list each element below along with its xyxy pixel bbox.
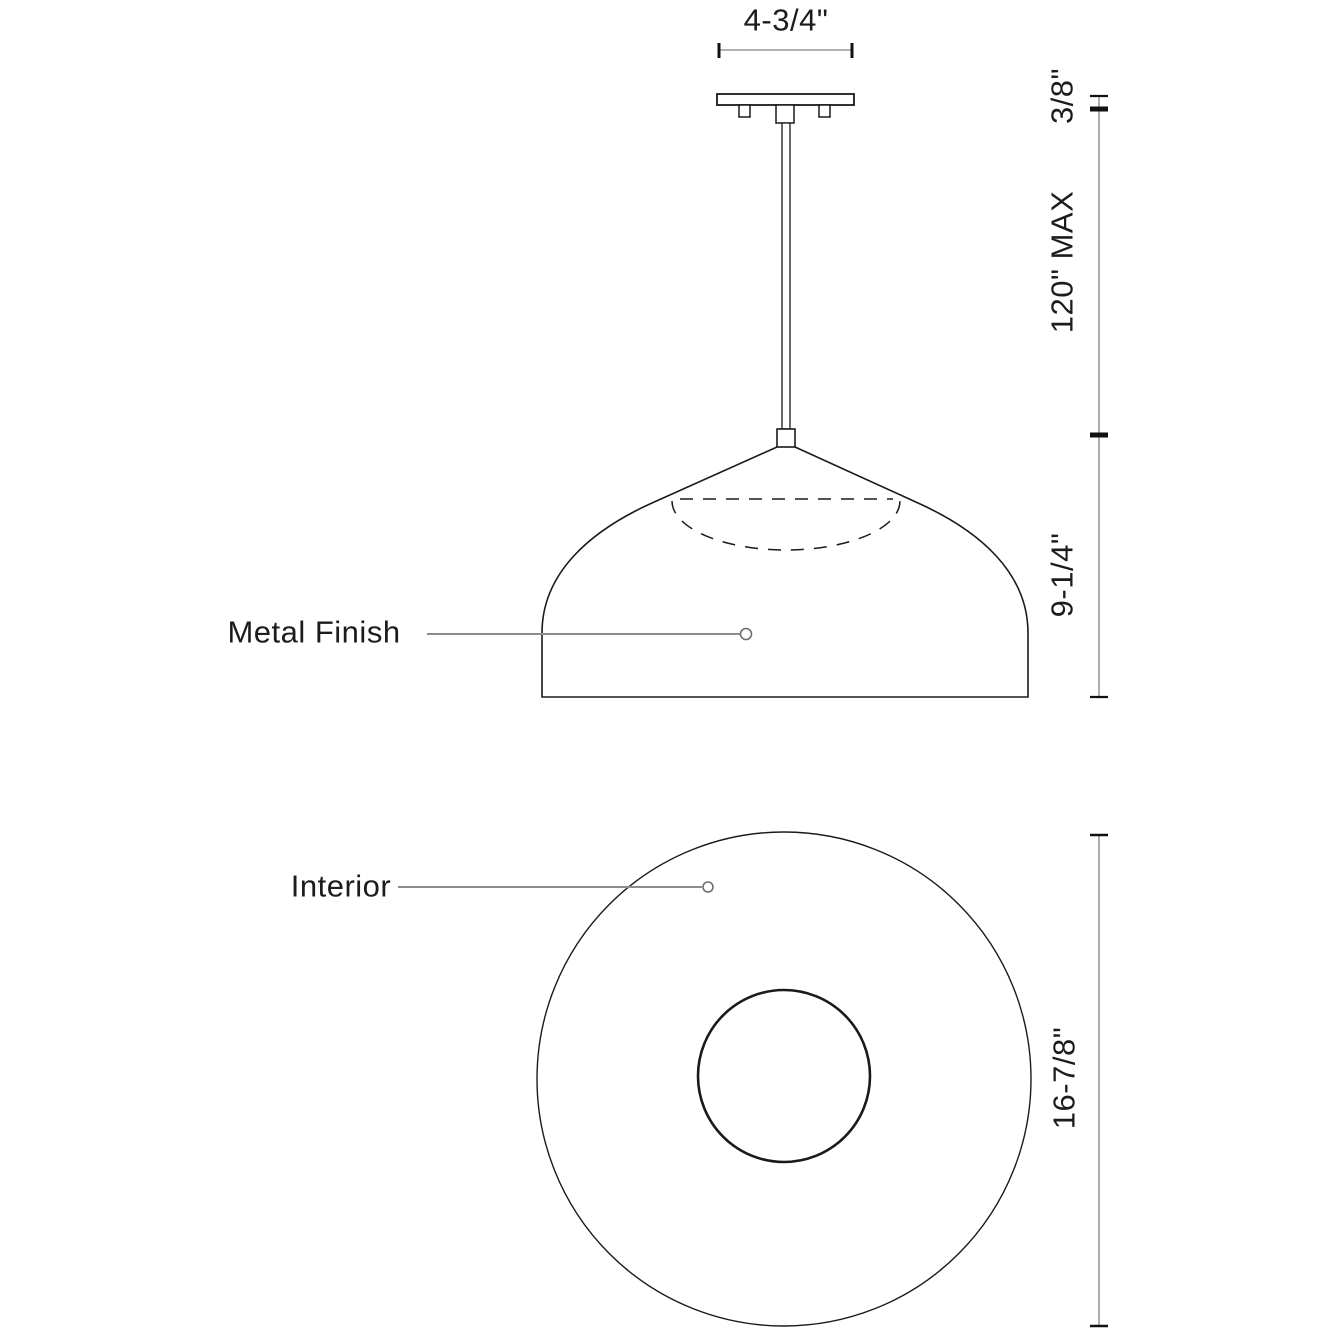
dimension-label-shade-diameter: 16-7/8" (1049, 1027, 1080, 1129)
leader-interior (398, 882, 713, 892)
canopy-screw-left (739, 105, 750, 117)
shade-connector (777, 429, 795, 447)
front-view (427, 43, 1108, 697)
canopy-screw-right (819, 105, 830, 117)
canopy-stem-block (776, 105, 794, 123)
canopy (717, 94, 854, 123)
bottom-view (398, 832, 1108, 1326)
canopy-plate (717, 94, 854, 105)
drawing-linework (0, 0, 1328, 1328)
dimension-canopy-width (719, 43, 852, 58)
leader-metal-finish (427, 629, 752, 640)
shade-outline (542, 447, 1028, 697)
shade-inner-opening-circle (698, 990, 870, 1162)
hanging-rod (782, 123, 790, 429)
leader-endpoint-circle (703, 882, 713, 892)
diffuser-bottom-dashed-arc (672, 501, 900, 550)
dimension-front-vertical (1090, 96, 1108, 697)
leader-endpoint-circle (741, 629, 752, 640)
dimension-label-canopy-width: 4-3/4" (744, 5, 829, 36)
callout-label-interior: Interior (291, 871, 391, 902)
dimension-label-rod-max-length: 120" MAX (1047, 191, 1078, 334)
dimension-diameter (1090, 835, 1108, 1326)
dimension-label-shade-height: 9-1/4" (1047, 533, 1078, 618)
dimension-label-canopy-thickness: 3/8" (1047, 68, 1078, 124)
diffuser-hidden-lines (672, 499, 900, 550)
shade-outer-circle (537, 832, 1031, 1326)
callout-label-metal-finish: Metal Finish (227, 617, 400, 648)
pendant-dimension-drawing: 4-3/4" 3/8" 120" MAX 9-1/4" Metal Finish… (0, 0, 1328, 1328)
